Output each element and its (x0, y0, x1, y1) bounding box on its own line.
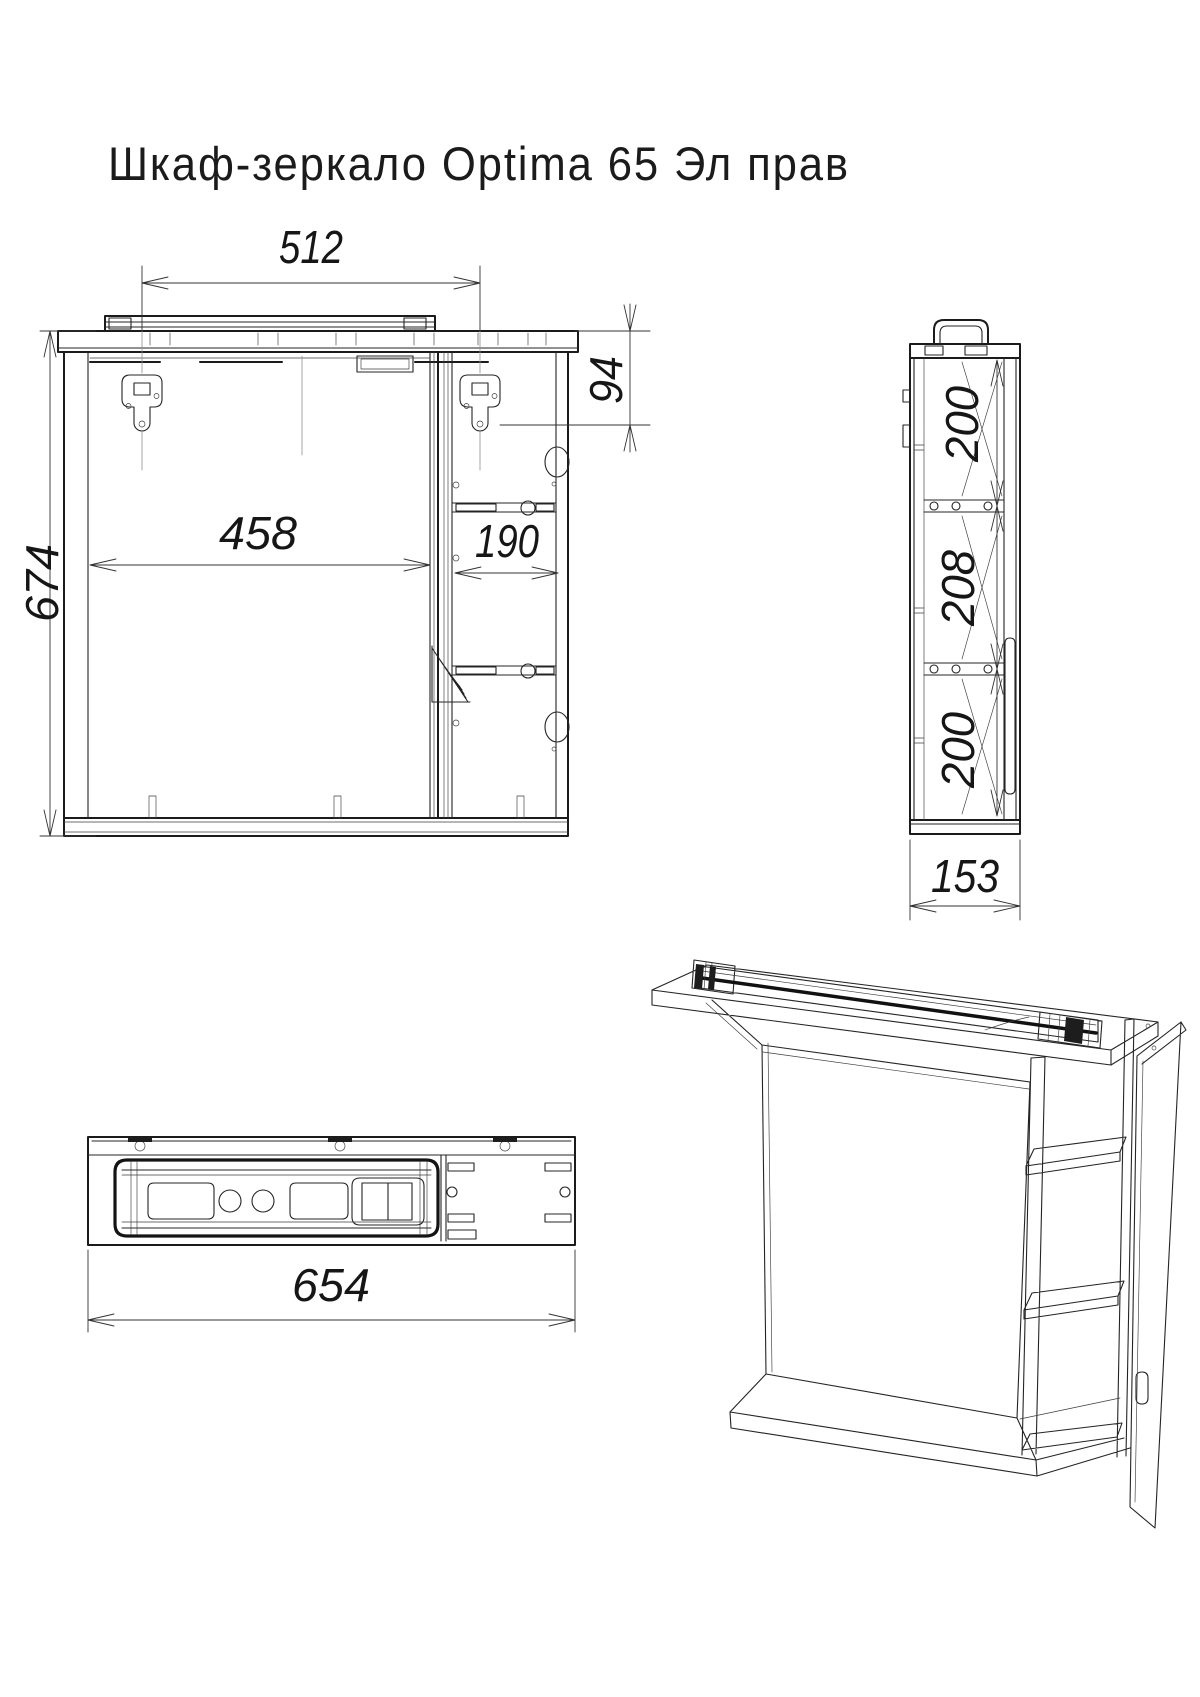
dim-depth-label: 153 (931, 850, 999, 902)
dim-side-bottom-section-label: 200 (932, 712, 984, 789)
bottom-view-outline (88, 1137, 575, 1245)
dim-mirror-width-label: 458 (219, 507, 297, 559)
dim-mount-spacing-label: 512 (279, 221, 343, 273)
perspective-linework (652, 960, 1186, 1528)
dim-overall-height-label: 674 (16, 544, 68, 622)
hanging-bracket-right (460, 375, 500, 431)
technical-drawing-canvas: Шкаф-зеркало Optima 65 Эл прав 512 674 9… (0, 0, 1200, 1697)
drawing-title: Шкаф-зеркало Optima 65 Эл прав (108, 137, 850, 190)
front-view-fine-details (64, 333, 568, 832)
dim-overall-width-label: 654 (292, 1259, 370, 1311)
side-view: 200 208 200 153 (903, 320, 1020, 920)
perspective-view (652, 960, 1186, 1528)
front-view: 512 674 94 458 190 (16, 221, 650, 836)
title-block: Шкаф-зеркало Optima 65 Эл прав (108, 137, 850, 190)
drawing-sheet: Шкаф-зеркало Optima 65 Эл прав 512 674 9… (0, 0, 1200, 1697)
perspective-fine-details (702, 962, 1156, 1502)
bottom-view-details (88, 1141, 575, 1241)
hanging-bracket-left (122, 375, 162, 431)
dim-side-middle-section-label: 208 (932, 550, 984, 627)
dim-mount-top-offset-label: 94 (580, 356, 632, 404)
bottom-view: 654 (88, 1137, 575, 1332)
dim-shelf-width-label: 190 (475, 515, 539, 567)
dim-side-top-section-label: 200 (936, 386, 988, 463)
lamp-tube-line (702, 978, 1096, 1033)
